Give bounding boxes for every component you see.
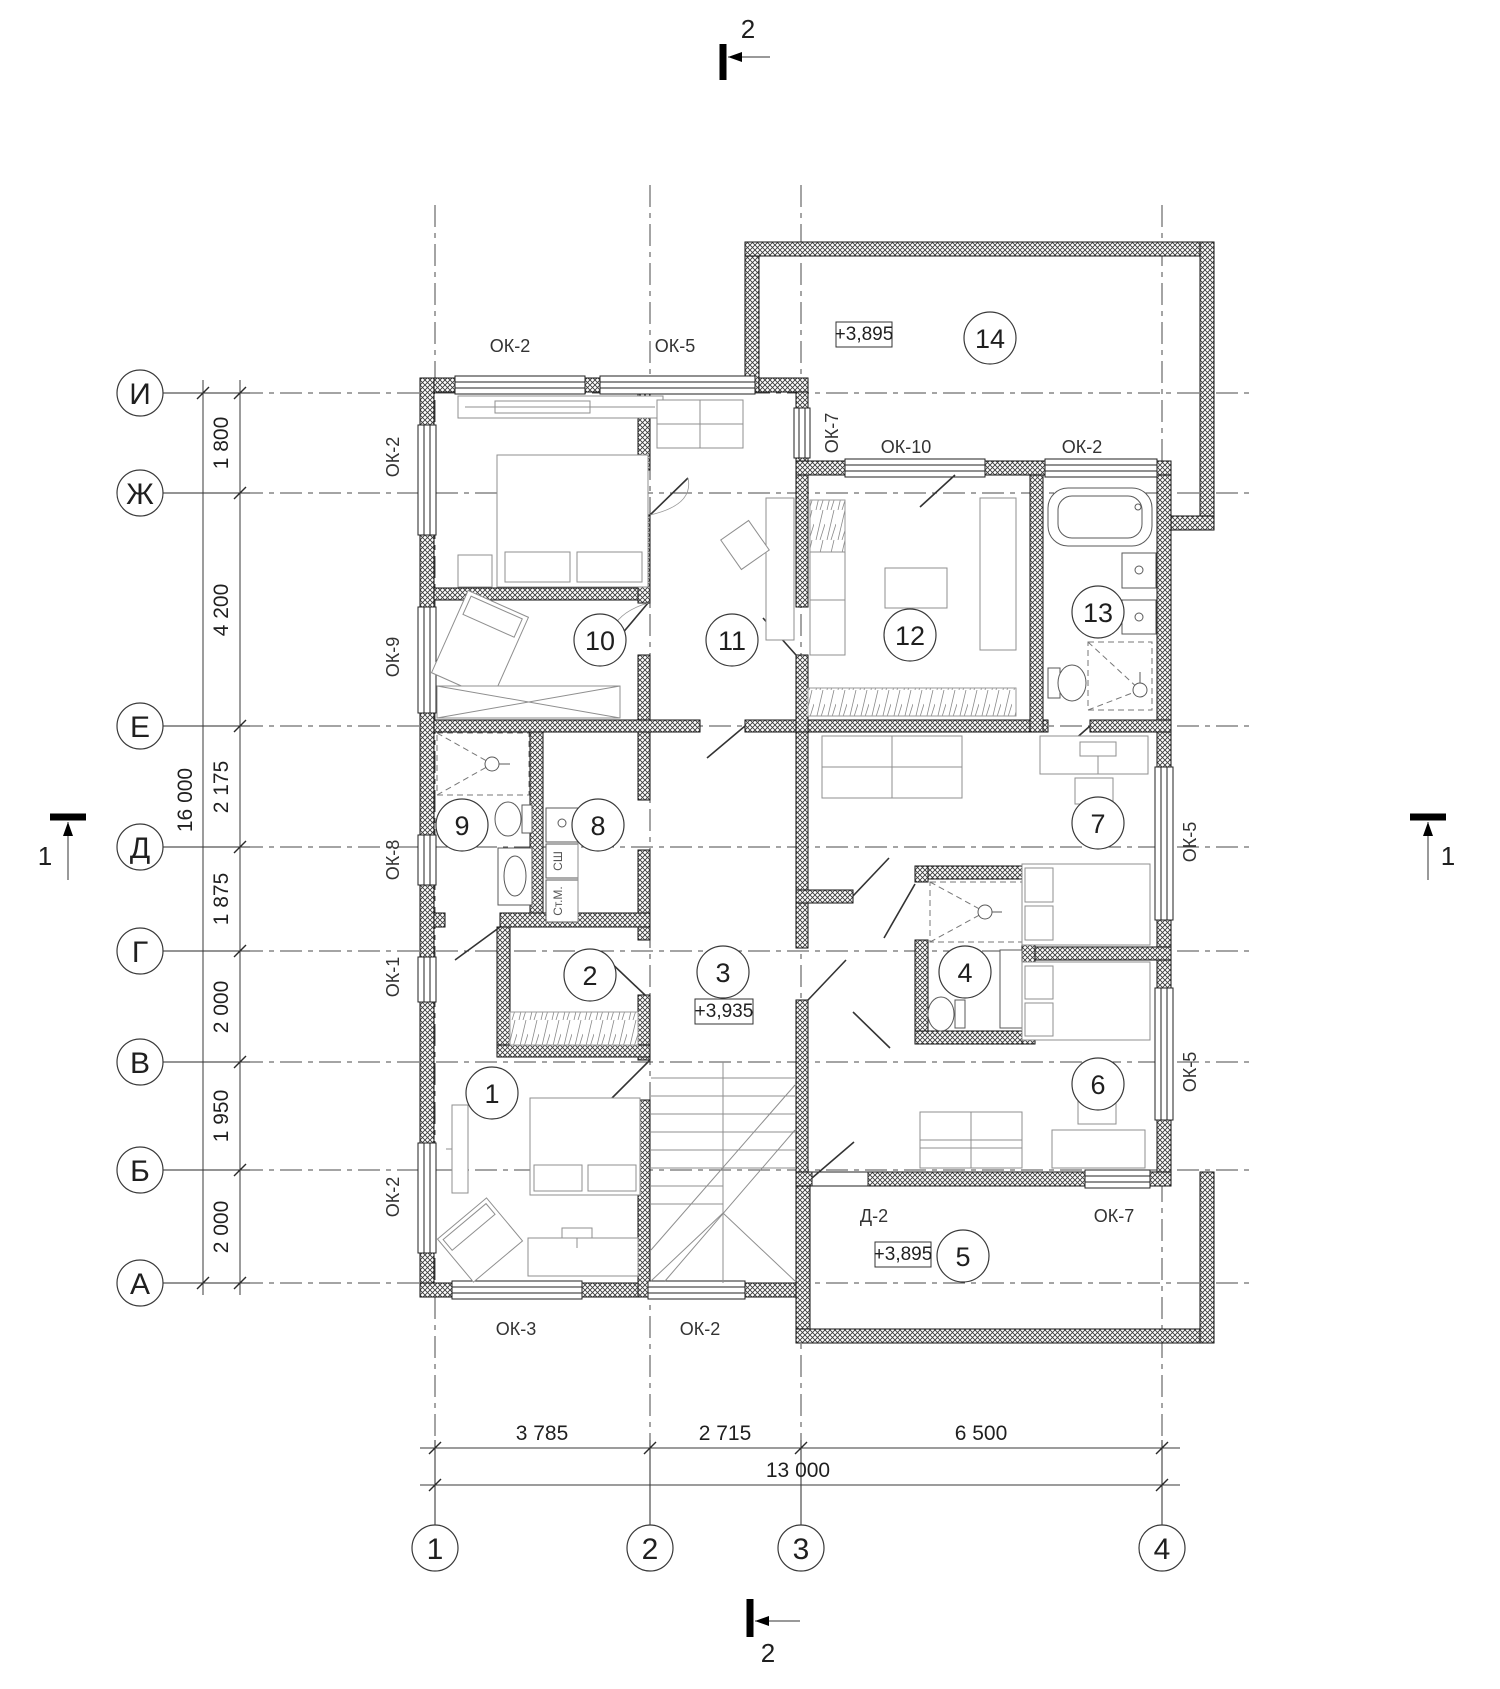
room-number: 3 [715, 958, 730, 988]
floor-plan-canvas: И Ж Е Д Г В Б А 1 2 3 4 1 800 4 200 2 17… [0, 0, 1500, 1684]
axis-row-label: В [130, 1047, 150, 1080]
door-d2-threshold [812, 1172, 868, 1186]
elevation-value: +3,895 [874, 1244, 933, 1265]
room-number: 14 [975, 324, 1005, 354]
window-ok1-left [418, 957, 436, 1002]
dim-text: 2 175 [210, 761, 233, 814]
window-label: ОК-5 [655, 336, 696, 356]
window-label: ОК-1 [383, 957, 403, 998]
window-ok2-left-upper [418, 425, 436, 535]
window-ok5-right-lower [1155, 988, 1173, 1120]
room-number: 8 [590, 811, 605, 841]
window-label: ОК-9 [383, 637, 403, 678]
axis-row-label: А [130, 1268, 150, 1301]
axis-col-label: 3 [793, 1533, 810, 1566]
elevation-value: +3,895 [835, 324, 894, 345]
section-number: 2 [741, 14, 755, 44]
window-label: ОК-2 [680, 1319, 721, 1339]
window-ok5-top [600, 376, 755, 394]
section-mark-bottom: 2 [750, 1599, 800, 1668]
window-ok2-top [455, 376, 585, 394]
room-number: 1 [484, 1079, 499, 1109]
section-number: 1 [38, 841, 52, 871]
window-label: ОК-2 [490, 336, 531, 356]
section-mark-right: 1 [1410, 817, 1455, 880]
axis-col-label: 4 [1154, 1533, 1171, 1566]
window-label: ОК-2 [383, 437, 403, 478]
axis-col-label: 2 [642, 1533, 659, 1566]
appliance-label: Ст.М. [551, 886, 565, 916]
window-label: ОК-10 [881, 437, 932, 457]
section-mark-left: 1 [38, 817, 86, 880]
dim-total-text: 13 000 [766, 1459, 830, 1482]
dim-text: 3 785 [516, 1422, 569, 1445]
axis-row-label: Г [132, 936, 148, 969]
dim-total-text: 16 000 [174, 768, 197, 832]
appliance-label: СШ [551, 851, 565, 871]
left-dimensions: 1 800 4 200 2 175 1 875 2 000 1 950 2 00… [174, 380, 246, 1295]
section-number: 1 [1441, 841, 1455, 871]
dim-text: 1 800 [210, 417, 233, 470]
room-number: 11 [718, 626, 746, 656]
window-ok7-south [1085, 1170, 1150, 1188]
room-number: 13 [1083, 598, 1113, 628]
window-ok2-left-lower [418, 1143, 436, 1253]
axis-row-label: Е [130, 711, 150, 744]
dim-text: 1 875 [210, 873, 233, 926]
elevation-value: +3,935 [695, 1001, 754, 1022]
staircase [651, 1062, 795, 1283]
room-number: 10 [585, 626, 615, 656]
axis-row-label: Б [130, 1155, 150, 1188]
toilet-13 [1048, 665, 1086, 701]
window-label: ОК-5 [1180, 1052, 1200, 1093]
room-number: 7 [1090, 809, 1105, 839]
window-label: ОК-7 [1094, 1206, 1135, 1226]
window-ok8-left [418, 835, 436, 885]
window-ok2-north [1045, 459, 1157, 477]
window-label: ОК-8 [383, 840, 403, 881]
window-ok3-bottom [452, 1281, 582, 1299]
room-number: 2 [582, 961, 597, 991]
axis-col-label: 1 [427, 1533, 444, 1566]
window-ok9-left [418, 607, 436, 713]
window-ok5-right-upper [1155, 767, 1173, 920]
window-label: ОК-2 [383, 1177, 403, 1218]
shower-9 [437, 733, 529, 795]
shower-4 [930, 882, 1022, 942]
door-label: Д-2 [860, 1206, 888, 1226]
axis-row-label: Д [130, 832, 150, 865]
dim-text: 2 000 [210, 981, 233, 1034]
axis-row-label: И [129, 378, 151, 411]
room-number: 9 [454, 811, 469, 841]
axis-row-bubbles: И Ж Е Д Г В Б А [117, 370, 250, 1306]
axis-row-label: Ж [126, 478, 154, 511]
dim-text: 2 000 [210, 1201, 233, 1254]
window-label: ОК-2 [1062, 437, 1103, 457]
section-mark-top: 2 [723, 14, 770, 80]
dim-text: 1 950 [210, 1090, 233, 1143]
dim-text: 2 715 [699, 1422, 752, 1445]
room-number: 4 [957, 958, 972, 988]
dim-text: 4 200 [210, 584, 233, 637]
dim-text: 6 500 [955, 1422, 1008, 1445]
room-number: 6 [1090, 1070, 1105, 1100]
window-label: ОК-7 [822, 413, 842, 454]
window-label: ОК-3 [496, 1319, 537, 1339]
toilet-9 [495, 802, 532, 836]
window-ok2-bottom [648, 1281, 745, 1299]
bottom-dimensions: 3 785 2 715 6 500 13 000 [420, 1422, 1180, 1491]
toilet-4 [928, 997, 965, 1031]
window-ok10-north [845, 459, 985, 477]
section-number: 2 [761, 1638, 775, 1668]
room-number: 12 [895, 621, 925, 651]
room-number: 5 [955, 1242, 970, 1272]
window-label: ОК-5 [1180, 822, 1200, 863]
window-ok7-vestibule [794, 408, 810, 458]
shower-13 [1088, 642, 1152, 710]
